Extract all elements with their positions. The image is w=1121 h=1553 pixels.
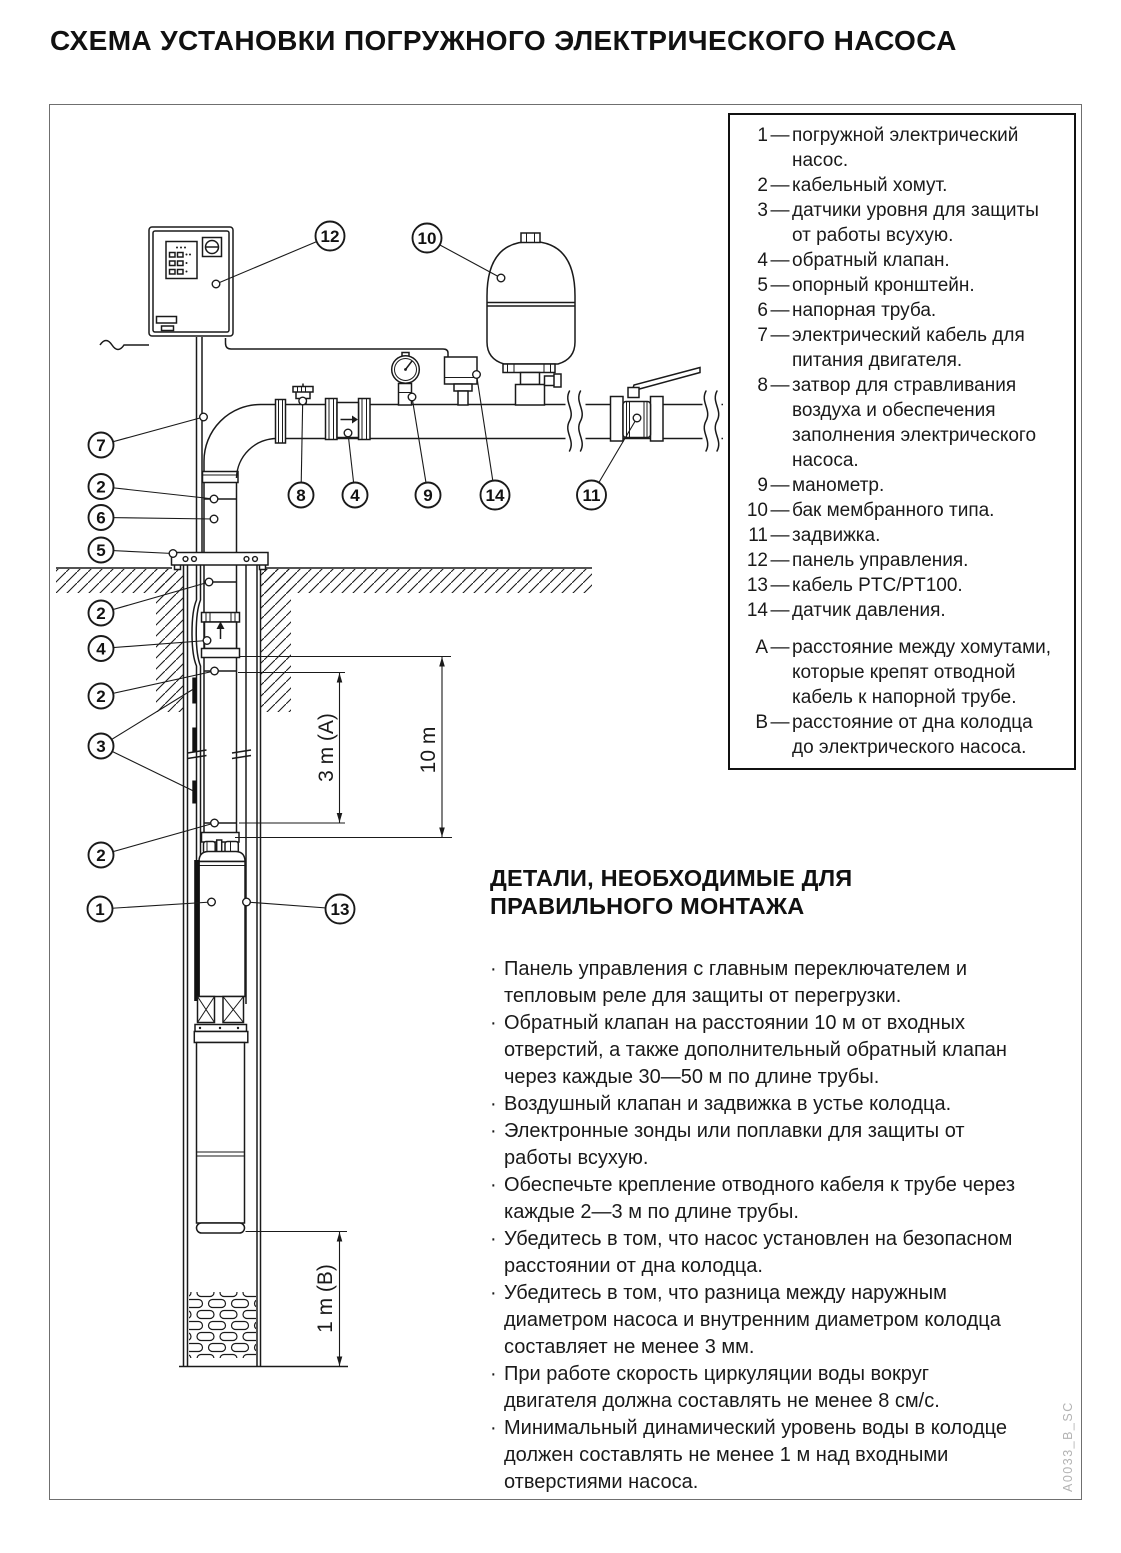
legend-item: 14—датчик давления. (738, 598, 1068, 623)
legend-number: 11 (738, 523, 768, 548)
legend-text: задвижка. (792, 523, 1068, 548)
legend-text: датчик давления. (792, 598, 1068, 623)
support-bracket (172, 553, 269, 570)
callout-14: 14 (486, 486, 505, 505)
legend-item: 5—опорный кронштейн. (738, 273, 1068, 298)
list-item: ·Обратный клапан на расстоянии 10 м от в… (490, 1010, 1076, 1091)
legend-dash: — (768, 273, 792, 298)
legend-item: 1—погружной электрический насос. (738, 123, 1068, 173)
ground-hatch-left (56, 569, 172, 593)
list-item: ·Панель управления с главным переключате… (490, 956, 1076, 1010)
legend-item: 12—панель управления. (738, 548, 1068, 573)
callout-3: 3 (96, 737, 105, 756)
legend-item: 10—бак мембранного типа. (738, 498, 1068, 523)
tank-flange (503, 364, 555, 373)
riser-coupling (203, 472, 239, 483)
callout-7: 7 (96, 436, 105, 455)
legend-item: 11—задвижка. (738, 523, 1068, 548)
valve-handle (632, 368, 700, 392)
legend-item: 13—кабель PTC/PT100. (738, 573, 1068, 598)
legend-box: 1—погружной электрический насос. 2—кабел… (728, 113, 1076, 770)
pump-suction-section (194, 997, 248, 1043)
legend-number: 2 (738, 173, 768, 198)
callout-2: 2 (96, 604, 105, 623)
legend-item: 7—электрический кабель для питания двига… (738, 323, 1068, 373)
dim-label-10m: 10 m (417, 727, 440, 774)
legend-text: опорный кронштейн. (792, 273, 1068, 298)
legend-number: 10 (738, 498, 768, 523)
legend-number: 4 (738, 248, 768, 273)
dimensions: 3 m (A) 10 m 1 m (B) (235, 657, 452, 1367)
legend-dash: — (768, 548, 792, 573)
dim-label-1m: 1 m (B) (314, 1264, 337, 1333)
legend-dash: — (768, 498, 792, 523)
legend-text: кабельный хомут. (792, 173, 1068, 198)
ground-hatch-right (262, 569, 592, 593)
legend-number: 5 (738, 273, 768, 298)
callout-4: 4 (350, 486, 360, 505)
legend-text: манометр. (792, 473, 1068, 498)
note-letter: А (738, 635, 768, 710)
note-text: расстояние от дна колодца до электрическ… (792, 710, 1068, 760)
callout-2: 2 (96, 687, 105, 706)
legend-text: бак мембранного типа. (792, 498, 1068, 523)
legend-dash: — (768, 198, 792, 248)
legend-text: напорная труба. (792, 298, 1068, 323)
control-panel (100, 227, 233, 350)
legend-dash: — (768, 298, 792, 323)
bullet-text: Обратный клапан на расстоянии 10 м от вх… (504, 1010, 1076, 1091)
legend-dash: — (768, 523, 792, 548)
note-letter: В (738, 710, 768, 760)
list-item: ·При работе скорость циркуляции воды вок… (490, 1361, 1076, 1415)
legend-dash: — (768, 710, 792, 760)
list-item: ·Воздушный клапан и задвижка в устье кол… (490, 1091, 1076, 1118)
list-item: ·Минимальный динамический уровень воды в… (490, 1415, 1076, 1496)
cable-guard (194, 860, 200, 1001)
legend-number: 9 (738, 473, 768, 498)
legend-note: А—расстояние между хомутами, которые кре… (738, 635, 1068, 710)
list-item: ·Электронные зонды или поплавки для защи… (490, 1118, 1076, 1172)
list-item: ·Обеспечьте крепление отводного кабеля к… (490, 1172, 1076, 1226)
legend-number: 7 (738, 323, 768, 373)
membrane-tank (487, 233, 575, 405)
submersible-pump (194, 833, 248, 1234)
dimension-3m: 3 m (A) (238, 673, 345, 824)
bullet-dot: · (490, 1118, 504, 1172)
dim-label-3m: 3 m (A) (315, 713, 338, 782)
legend-number: 13 (738, 573, 768, 598)
legend-dash: — (768, 635, 792, 710)
callout-4: 4 (96, 640, 106, 659)
level-sensors (192, 678, 197, 804)
bullet-dot: · (490, 1091, 504, 1118)
bullet-text: Минимальный динамический уровень воды в … (504, 1415, 1076, 1496)
pipe-coupling-ring (276, 400, 286, 444)
legend-number: 8 (738, 373, 768, 473)
legend-number: 12 (738, 548, 768, 573)
callout-11: 11 (583, 486, 601, 505)
pressure-sensor (226, 338, 478, 405)
legend-text: погружной электрический насос. (792, 123, 1068, 173)
legend-dash: — (768, 573, 792, 598)
legend-dash: — (768, 323, 792, 373)
bullet-dot: · (490, 1280, 504, 1361)
bullet-text: Панель управления с главным переключател… (504, 956, 1076, 1010)
callout-6: 6 (96, 509, 105, 528)
legend-text: датчики уровня для защиты от работы всух… (792, 198, 1068, 248)
legend-text: электрический кабель для питания двигате… (792, 323, 1068, 373)
callout-1: 1 (95, 900, 104, 919)
well-gravel (189, 1292, 256, 1358)
legend-dash: — (768, 598, 792, 623)
legend-text: затвор для стравливания воздуха и обеспе… (792, 373, 1068, 473)
list-item: ·Убедитесь в том, что разница между нару… (490, 1280, 1076, 1361)
callout-8: 8 (296, 486, 305, 505)
callout-5: 5 (96, 541, 105, 560)
document-page: СХЕМА УСТАНОВКИ ПОГРУЖНОГО ЭЛЕКТРИЧЕСКОГ… (0, 0, 1121, 1553)
legend-notes: А—расстояние между хомутами, которые кре… (738, 635, 1068, 760)
legend-note: В—расстояние от дна колодца до электриче… (738, 710, 1068, 760)
legend-item: 8—затвор для стравливания воздуха и обес… (738, 373, 1068, 473)
legend-item: 9—манометр. (738, 473, 1068, 498)
legend-number: 14 (738, 598, 768, 623)
legend-dash: — (768, 248, 792, 273)
bullet-dot: · (490, 956, 504, 1010)
callout-12: 12 (321, 227, 340, 246)
note-text: расстояние между хомутами, которые крепя… (792, 635, 1068, 710)
legend-item: 3—датчики уровня для защиты от работы вс… (738, 198, 1068, 248)
callout-2: 2 (96, 846, 105, 865)
sensor-cable (226, 338, 449, 357)
pump-body (199, 862, 245, 997)
details-list: ·Панель управления с главным переключате… (490, 956, 1076, 1496)
callout-2: 2 (96, 478, 105, 497)
pump-motor (197, 1043, 245, 1234)
tank-top-cap (521, 233, 540, 243)
legend-item: 4—обратный клапан. (738, 248, 1068, 273)
bullet-dot: · (490, 1361, 504, 1415)
legend-text: кабель PTC/PT100. (792, 573, 1068, 598)
callout-13: 13 (331, 900, 350, 919)
legend-dash: — (768, 123, 792, 173)
bullet-text: Воздушный клапан и задвижка в устье коло… (504, 1091, 1076, 1118)
callout-10: 10 (418, 229, 437, 248)
details-section: ДЕТАЛИ, НЕОБХОДИМЫЕ ДЛЯ ПРАВИЛЬНОГО МОНТ… (490, 864, 1076, 1496)
legend-number: 6 (738, 298, 768, 323)
legend-number: 3 (738, 198, 768, 248)
legend-dash: — (768, 473, 792, 498)
bullet-dot: · (490, 1010, 504, 1091)
bullet-dot: · (490, 1172, 504, 1226)
legend-number: 1 (738, 123, 768, 173)
details-heading: ДЕТАЛИ, НЕОБХОДИМЫЕ ДЛЯ ПРАВИЛЬНОГО МОНТ… (490, 864, 1076, 920)
callout-9: 9 (423, 486, 432, 505)
wall-break-line (100, 341, 149, 350)
bullet-text: Убедитесь в том, что разница между наруж… (504, 1280, 1076, 1361)
bullet-text: При работе скорость циркуляции воды вокр… (504, 1361, 1076, 1415)
legend-text: панель управления. (792, 548, 1068, 573)
legend-dash: — (768, 173, 792, 198)
list-item: ·Убедитесь в том, что насос установлен н… (490, 1226, 1076, 1280)
legend-item: 6—напорная труба. (738, 298, 1068, 323)
legend-item: 2—кабельный хомут. (738, 173, 1068, 198)
bullet-dot: · (490, 1226, 504, 1280)
bullet-text: Электронные зонды или поплавки для защит… (504, 1118, 1076, 1172)
bullet-text: Убедитесь в том, что насос установлен на… (504, 1226, 1076, 1280)
legend-dash: — (768, 373, 792, 473)
earth-column-right (261, 569, 291, 712)
ground-surface (56, 568, 592, 712)
bullet-dot: · (490, 1415, 504, 1496)
check-valve-well (202, 613, 240, 658)
bullet-text: Обеспечьте крепление отводного кабеля к … (504, 1172, 1076, 1226)
legend-text: обратный клапан. (792, 248, 1068, 273)
